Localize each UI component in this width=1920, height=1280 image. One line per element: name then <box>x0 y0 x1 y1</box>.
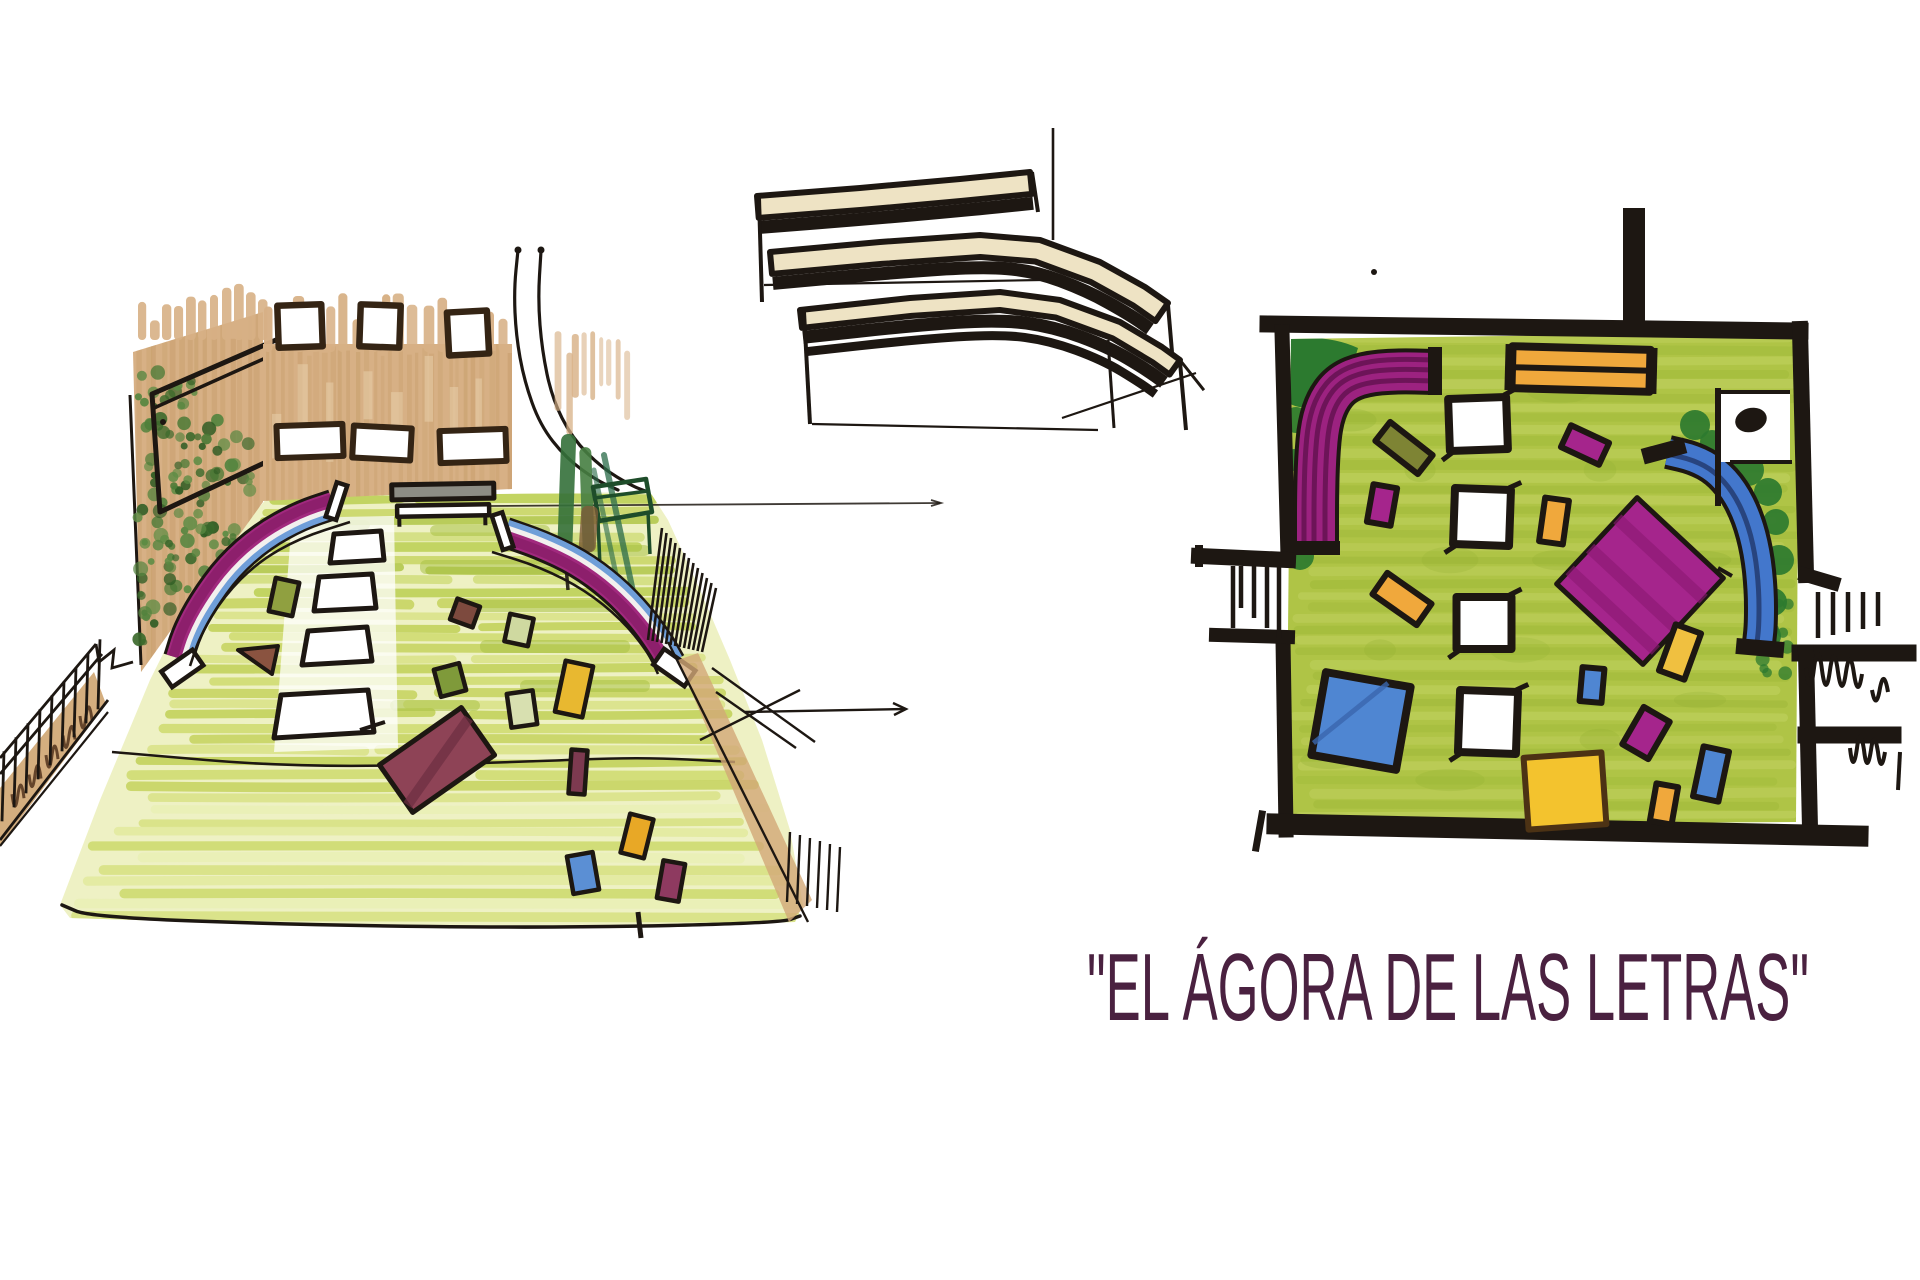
svg-text:"EL ÁGORA DE LAS LETRAS": "EL ÁGORA DE LAS LETRAS" <box>1087 934 1809 1041</box>
